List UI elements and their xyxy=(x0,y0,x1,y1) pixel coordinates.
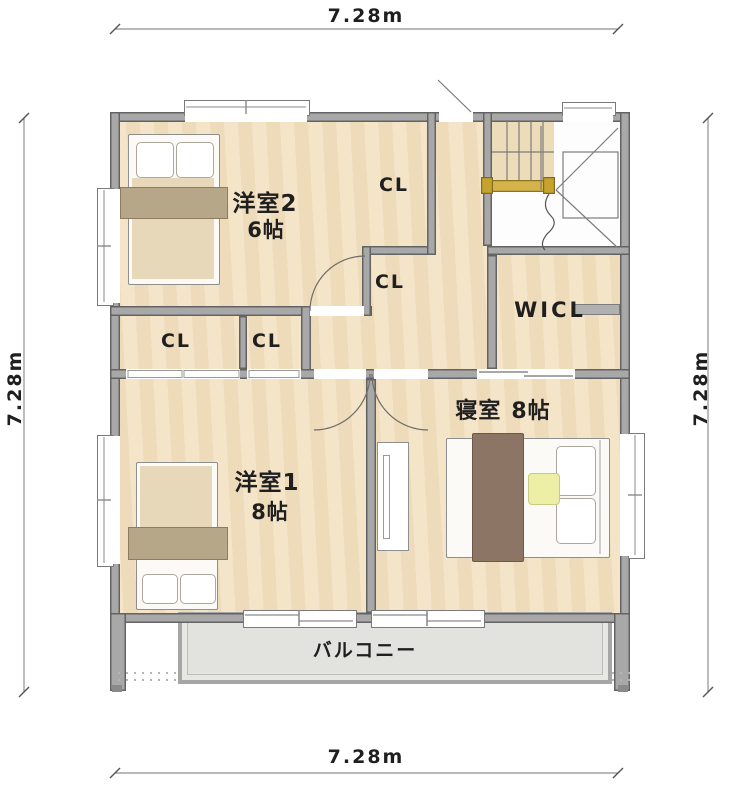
label-bedroom-name: 寝室 xyxy=(455,393,501,425)
dimension-left: 7.28m xyxy=(4,350,26,427)
bed-bedroom-pillow-1 xyxy=(556,446,596,496)
label-bedroom-size: 8帖 xyxy=(511,393,550,425)
window-right-bedroom xyxy=(628,433,645,559)
window-gap-right xyxy=(620,434,630,556)
label-closet-hall: CL xyxy=(375,271,405,293)
bed-yoshitsu1-band xyxy=(128,527,228,560)
bed-bedroom-pillow-2 xyxy=(556,498,596,544)
door-gap-yoshitsu1 xyxy=(314,369,366,379)
wall-closet-divider xyxy=(239,316,247,369)
sliding-door-bedroom xyxy=(371,610,485,628)
label-closet-left: CL xyxy=(161,330,191,352)
label-yoshitsu2: 洋室2 xyxy=(232,184,297,218)
bed-yoshitsu2-band xyxy=(120,187,228,219)
wall-column-bottom-right xyxy=(614,613,630,691)
wall-foot-left xyxy=(112,685,122,692)
dimension-top: 7.28m xyxy=(328,5,405,27)
sliding-door-yoshitsu1 xyxy=(243,610,357,628)
closet-door-mid xyxy=(247,369,301,379)
dimension-right: 7.28m xyxy=(690,350,712,427)
door-gap-stair-hall xyxy=(439,112,473,122)
floor-plan: 洋室2 6帖 洋室1 8帖 寝室 8帖 WICL CL CL CL CL バルコ… xyxy=(0,0,732,794)
bed-yoshitsu2-pillow-1 xyxy=(136,142,174,178)
door-gap-yoshitsu2 xyxy=(310,306,364,316)
closet-doors-left xyxy=(126,369,240,379)
stair-rail-post-left xyxy=(481,177,493,194)
wall-closet-a-right xyxy=(427,112,436,255)
bed-yoshitsu1-pillow-1 xyxy=(142,574,178,604)
bed-yoshitsu2-pillow-2 xyxy=(176,142,214,178)
label-balcony: バルコニー xyxy=(313,636,418,663)
bed-bedroom-blanket xyxy=(472,433,524,562)
wall-stairs-bottom xyxy=(487,246,630,255)
label-yoshitsu1-size: 8帖 xyxy=(251,496,289,526)
label-yoshitsu1: 洋室1 xyxy=(234,463,299,497)
door-gap-bedroom xyxy=(374,369,428,379)
label-bedroom: 寝室 8帖 xyxy=(455,393,550,425)
label-closet-mid: CL xyxy=(252,330,282,352)
window-gap-left1 xyxy=(110,189,120,303)
bedroom-desk xyxy=(377,442,409,551)
wall-column-bottom-left xyxy=(110,613,126,691)
bed-yoshitsu1-pillow-2 xyxy=(180,574,216,604)
bedroom-desk-inner xyxy=(383,455,390,539)
wall-hall-top-left xyxy=(362,246,436,255)
label-wicl: WICL xyxy=(514,298,586,322)
window-gap-top2 xyxy=(563,112,613,122)
door-gap-wicl xyxy=(477,369,575,379)
wall-wicl-left xyxy=(487,255,497,369)
wall-outer-bottom xyxy=(110,613,630,623)
bed-bedroom-cushion xyxy=(528,473,560,505)
label-yoshitsu2-size: 6帖 xyxy=(247,214,285,244)
wall-yoshitsu1-bedroom-divider xyxy=(366,379,376,613)
stair-rail-post-right xyxy=(543,177,555,194)
window-gap-top xyxy=(185,112,307,122)
dimension-bottom: 7.28m xyxy=(328,746,405,768)
window-gap-left2 xyxy=(110,436,120,564)
stair-treads xyxy=(492,120,554,182)
label-closet-top: CL xyxy=(379,174,409,196)
wall-foot-right xyxy=(618,685,628,692)
